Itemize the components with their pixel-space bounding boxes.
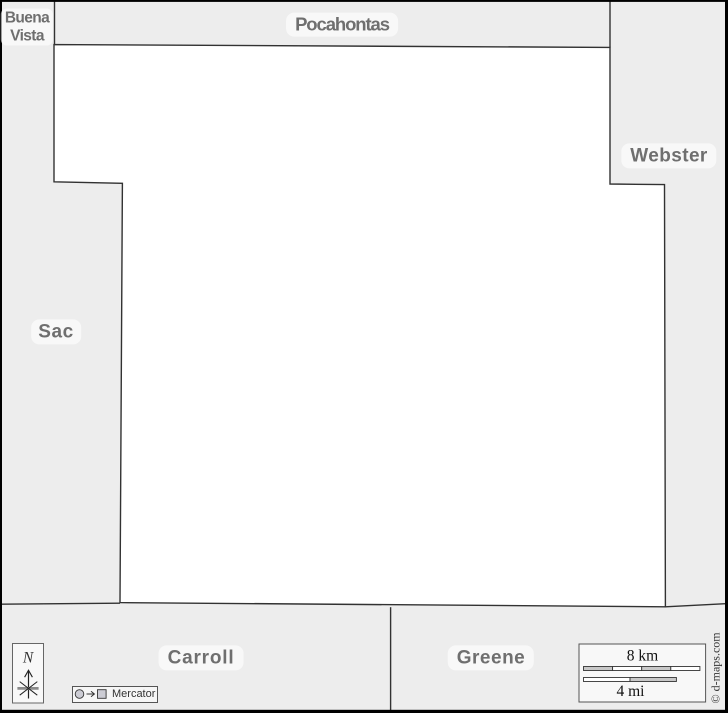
svg-text:4 mi: 4 mi [617, 683, 646, 700]
svg-text:N: N [22, 650, 35, 667]
svg-text:8 km: 8 km [627, 648, 658, 665]
svg-text:© d-maps.com: © d-maps.com [709, 632, 723, 704]
